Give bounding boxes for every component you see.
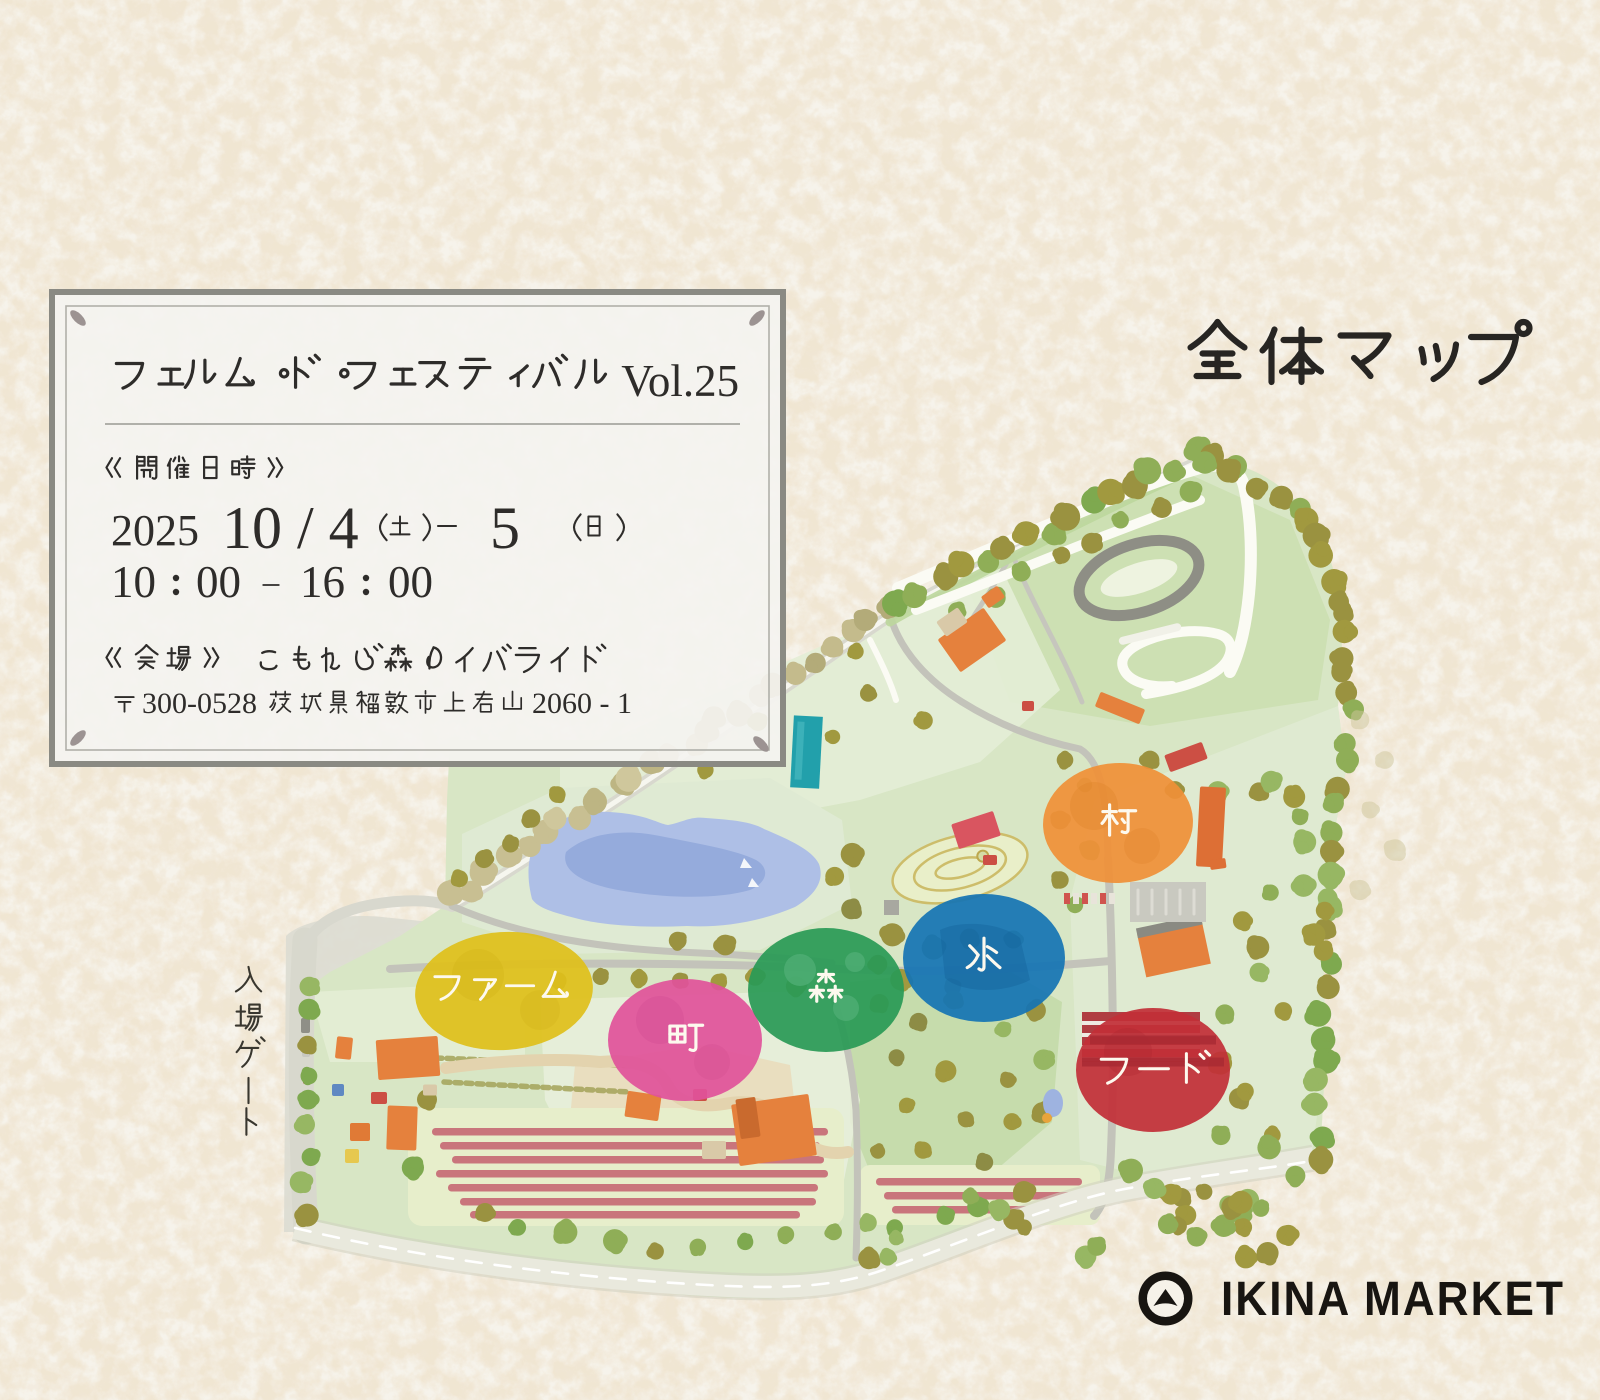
svg-text:300-0528: 300-0528 (142, 687, 257, 720)
svg-text:16: 16 (300, 557, 345, 607)
svg-text:00: 00 (388, 557, 433, 607)
svg-text:5: 5 (490, 495, 520, 561)
svg-text:10 / 4: 10 / 4 (222, 495, 359, 561)
svg-text:Vol.25: Vol.25 (621, 356, 739, 406)
svg-text:2025: 2025 (111, 506, 199, 555)
svg-text:2060 - 1: 2060 - 1 (532, 687, 632, 720)
svg-text:00: 00 (196, 557, 241, 607)
svg-text:10: 10 (111, 557, 156, 607)
svg-text:IKINA MARKET: IKINA MARKET (1221, 1271, 1565, 1325)
